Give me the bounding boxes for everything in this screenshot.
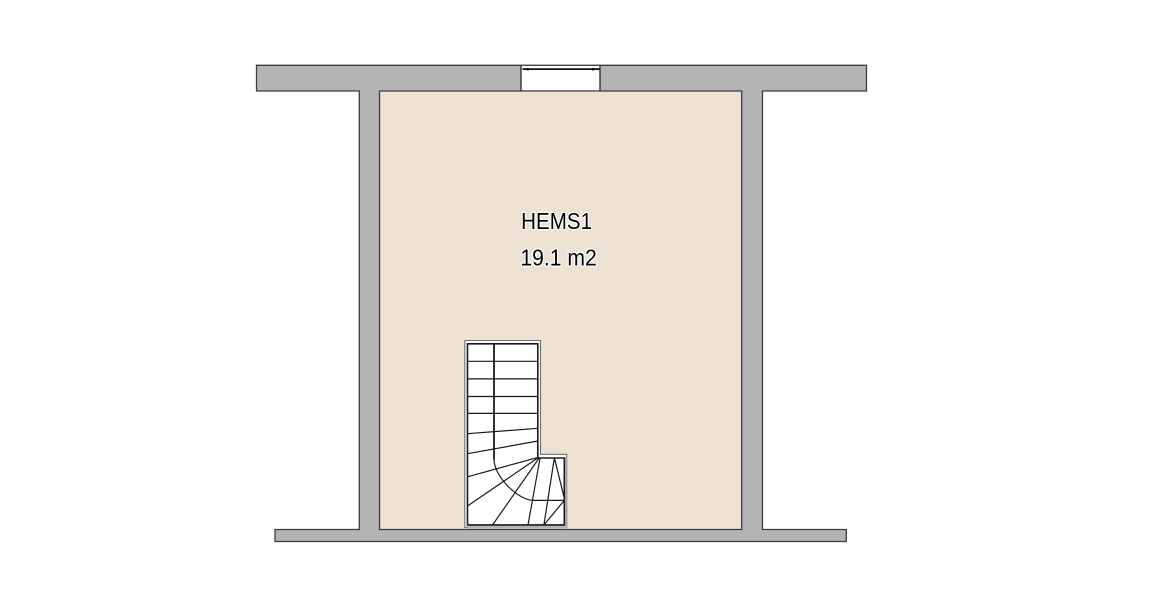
svg-text:HEMS1: HEMS1: [521, 208, 592, 235]
svg-text:19.1 m2: 19.1 m2: [520, 244, 596, 270]
